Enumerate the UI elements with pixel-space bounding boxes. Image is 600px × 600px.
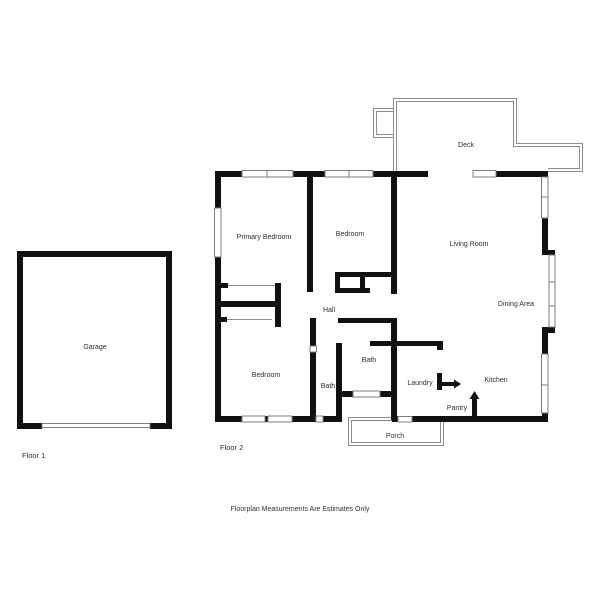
room-label-kitchen: Kitchen [484, 377, 507, 384]
floor-labels: Floor 1 Floor 2 [22, 443, 243, 460]
room-label-laundry: Laundry [407, 380, 433, 387]
room-label-living-room: Living Room [450, 241, 489, 248]
room-label-bath-main: Bath [362, 357, 377, 364]
floor2-label: Floor 2 [220, 443, 243, 452]
pantry-door-arrow [470, 391, 480, 399]
exterior-walls [215, 171, 555, 422]
garage-walls [17, 251, 172, 429]
laundry-door-arrow [441, 380, 461, 389]
room-label-primary-bedroom: Primary Bedroom [237, 234, 292, 241]
windows [215, 171, 556, 423]
room-label-deck: Deck [458, 142, 474, 149]
room-label-bedroom-top: Bedroom [336, 231, 365, 238]
room-label-pantry: Pantry [447, 405, 468, 412]
disclaimer-text: Floorplan Measurements Are Estimates Onl… [231, 506, 370, 513]
floorplan-svg: Deck Primary Bedroom Bedroom Living Room… [0, 0, 600, 600]
room-label-dining-area: Dining Area [498, 301, 534, 308]
room-label-garage: Garage [83, 344, 106, 351]
room-label-porch: Porch [386, 433, 404, 440]
interior-walls [215, 171, 477, 420]
room-label-hall: Hall [323, 307, 336, 314]
room-label-bath-lower: Bath [321, 383, 336, 390]
garage-door [42, 424, 150, 428]
floorplan-canvas: Deck Primary Bedroom Bedroom Living Room… [0, 0, 600, 600]
deck-outline [374, 99, 583, 172]
floor1-label: Floor 1 [22, 451, 45, 460]
room-label-bedroom-lower: Bedroom [252, 372, 281, 379]
